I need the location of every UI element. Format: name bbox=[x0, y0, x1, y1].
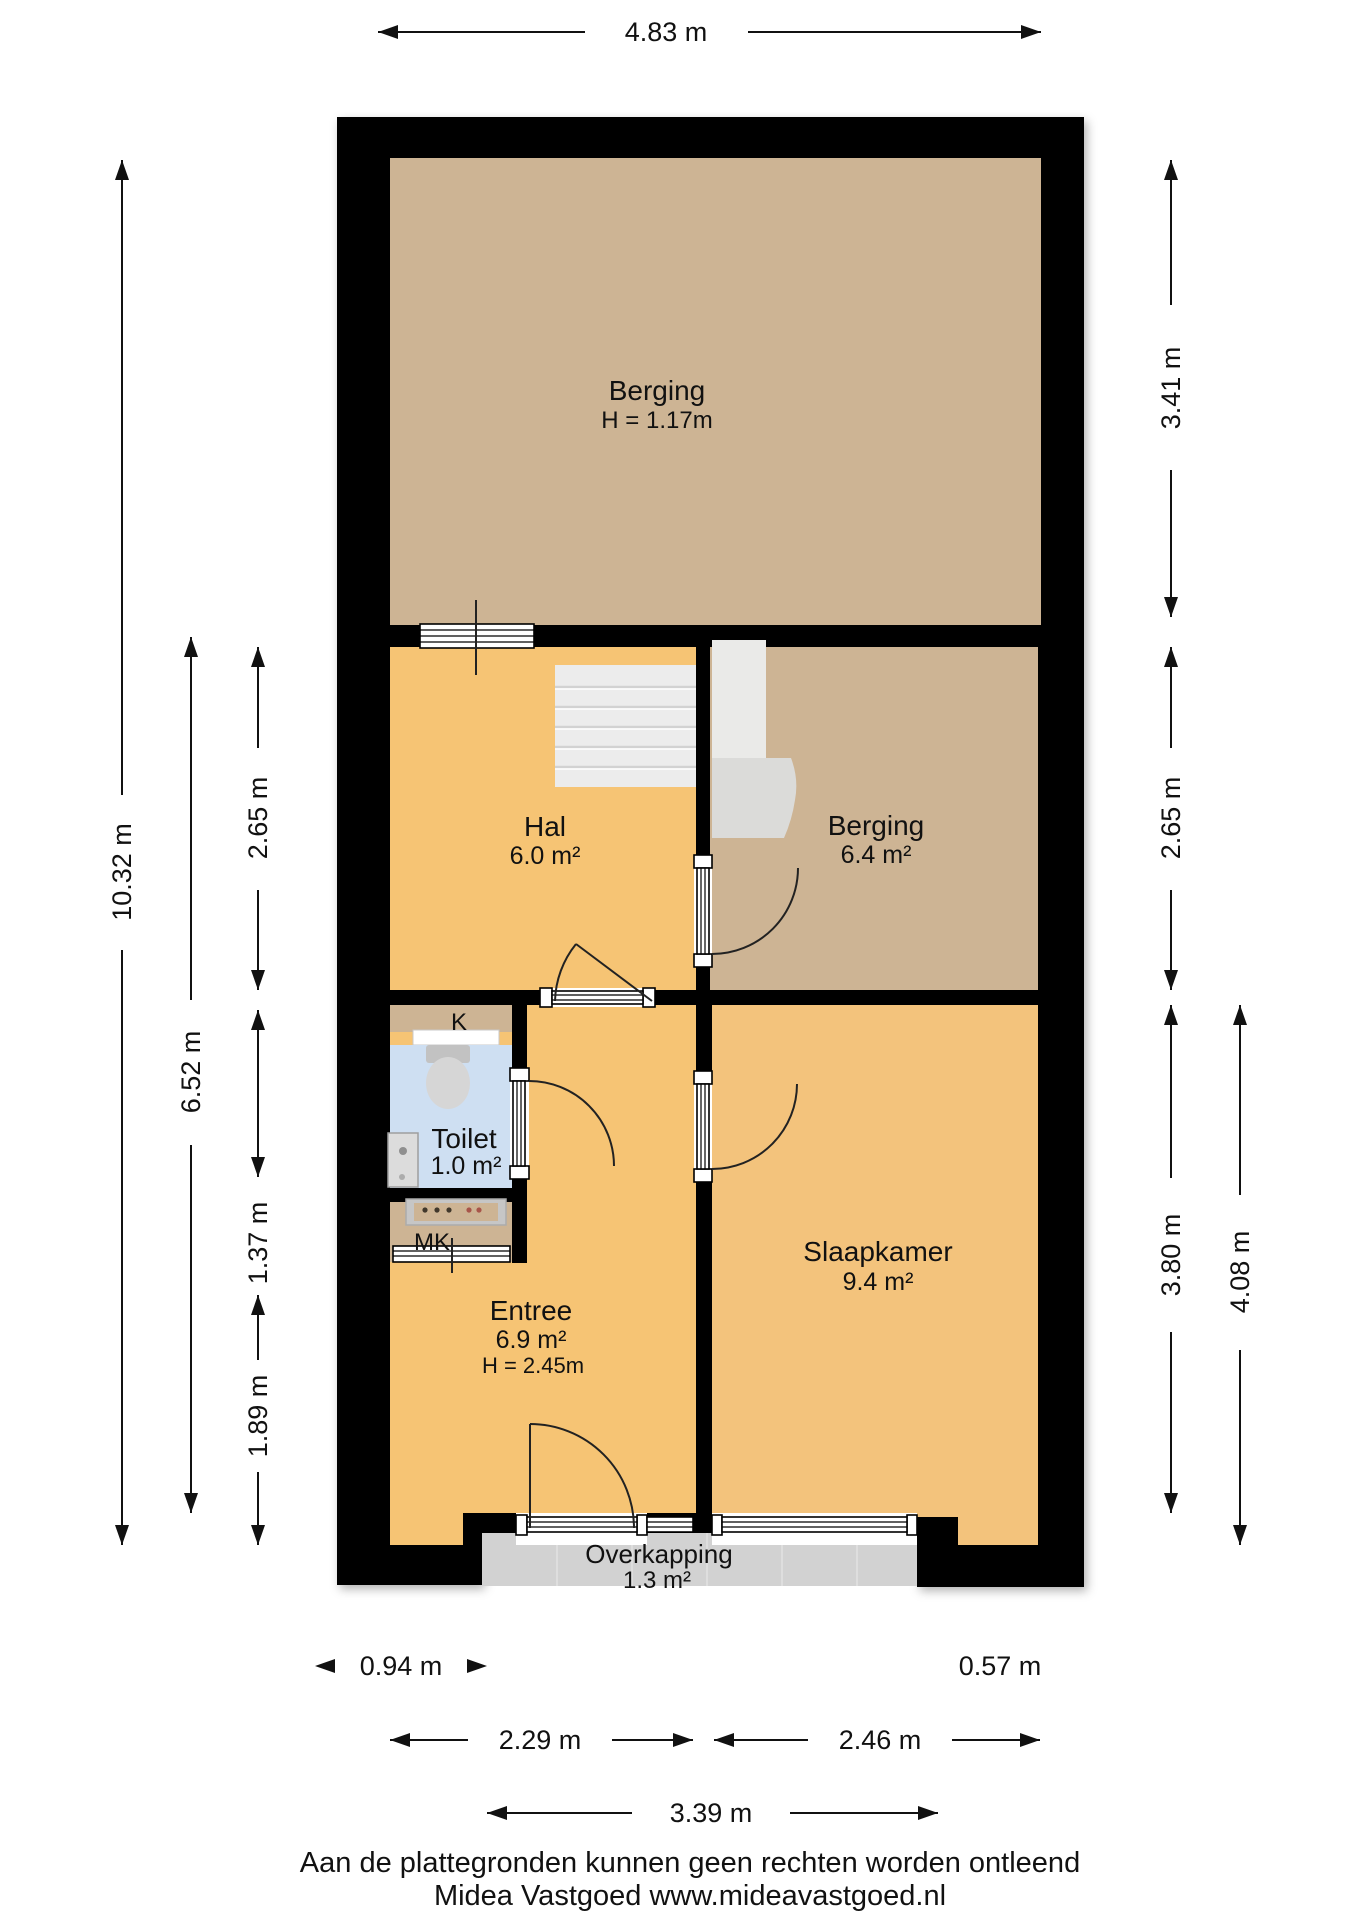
svg-text:0.94 m: 0.94 m bbox=[360, 1651, 443, 1681]
dim-bottom-step: 0.94 m bbox=[315, 1651, 487, 1681]
svg-text:1.89 m: 1.89 m bbox=[243, 1375, 273, 1458]
dim-bottom-overkapping: 3.39 m bbox=[487, 1798, 938, 1828]
sink-faucet bbox=[399, 1147, 407, 1155]
label-slaapkamer: Slaapkamer bbox=[803, 1236, 952, 1267]
footer-credit: Midea Vastgoed www.mideavastgoed.nl bbox=[434, 1880, 946, 1912]
svg-text:6.52 m: 6.52 m bbox=[176, 1031, 206, 1114]
dim-bottom-bulge: 0.57 m bbox=[959, 1651, 1042, 1681]
dim-left-hal: 2.65 m bbox=[243, 647, 273, 990]
floor-berging-top bbox=[390, 158, 1041, 625]
svg-text:3.41 m: 3.41 m bbox=[1156, 347, 1186, 430]
dim-right-slaapkamer: 3.80 m bbox=[1156, 1005, 1186, 1513]
svg-text:2.65 m: 2.65 m bbox=[1156, 777, 1186, 860]
dim-left-total: 10.32 m bbox=[107, 160, 137, 1545]
floorplan-canvas: Berging H = 1.17m Hal 6.0 m² Berging 6.4… bbox=[0, 0, 1358, 1920]
svg-text:4.08 m: 4.08 m bbox=[1225, 1231, 1255, 1314]
svg-text:1.37 m: 1.37 m bbox=[243, 1202, 273, 1285]
label-entree-height: H = 2.45m bbox=[482, 1353, 584, 1378]
svg-text:10.32 m: 10.32 m bbox=[107, 823, 137, 921]
label-meterkast: MK bbox=[414, 1229, 450, 1256]
label-hal-area: 6.0 m² bbox=[510, 842, 581, 870]
footer-disclaimer: Aan de plattegronden kunnen geen rechten… bbox=[300, 1847, 1080, 1879]
svg-text:3.39 m: 3.39 m bbox=[670, 1798, 753, 1828]
footer: Aan de plattegronden kunnen geen rechten… bbox=[300, 1847, 1080, 1912]
dim-right-berging-top: 3.41 m bbox=[1156, 160, 1186, 617]
label-berging-top: Berging bbox=[609, 375, 706, 406]
stairs bbox=[555, 665, 696, 787]
window-slaapkamer bbox=[712, 1513, 917, 1545]
label-berging-area: 6.4 m² bbox=[841, 841, 912, 869]
sink-drain bbox=[399, 1174, 405, 1180]
svg-text:2.29 m: 2.29 m bbox=[499, 1725, 582, 1755]
dim-left-mid: 6.52 m bbox=[176, 637, 206, 1513]
label-hal: Hal bbox=[524, 811, 566, 842]
floor-entree-step bbox=[390, 1513, 463, 1545]
svg-text:2.65 m: 2.65 m bbox=[243, 777, 273, 860]
label-toilet: Toilet bbox=[431, 1123, 497, 1154]
svg-text:2.46 m: 2.46 m bbox=[839, 1725, 922, 1755]
dim-right-berging: 2.65 m bbox=[1156, 647, 1186, 990]
dim-bottom-entree: 2.29 m bbox=[390, 1725, 693, 1755]
label-entree: Entree bbox=[490, 1295, 573, 1326]
dim-left-toilet: 1.37 m bbox=[243, 1010, 273, 1284]
dim-top-width: 4.83 m bbox=[378, 17, 1041, 47]
label-kast: K bbox=[451, 1009, 467, 1036]
svg-text:4.83 m: 4.83 m bbox=[625, 17, 708, 47]
label-overkapping-area: 1.3 m² bbox=[623, 1567, 691, 1594]
dim-bottom-slaapkamer: 2.46 m bbox=[714, 1725, 1040, 1755]
dim-right-slaapkamer-outer: 4.08 m bbox=[1225, 1005, 1255, 1545]
label-slaapkamer-area: 9.4 m² bbox=[843, 1268, 914, 1296]
label-berging: Berging bbox=[828, 810, 925, 841]
dim-left-entree: 1.89 m bbox=[243, 1295, 273, 1545]
toilet-bowl bbox=[426, 1057, 470, 1109]
svg-text:3.80 m: 3.80 m bbox=[1156, 1214, 1186, 1297]
floorplan-page: Berging H = 1.17m Hal 6.0 m² Berging 6.4… bbox=[0, 0, 1358, 1920]
label-toilet-area: 1.0 m² bbox=[431, 1152, 502, 1180]
window-entree bbox=[647, 1517, 693, 1532]
label-berging-top-height: H = 1.17m bbox=[601, 407, 712, 434]
label-entree-area: 6.9 m² bbox=[496, 1326, 567, 1354]
label-overkapping: Overkapping bbox=[585, 1539, 732, 1569]
